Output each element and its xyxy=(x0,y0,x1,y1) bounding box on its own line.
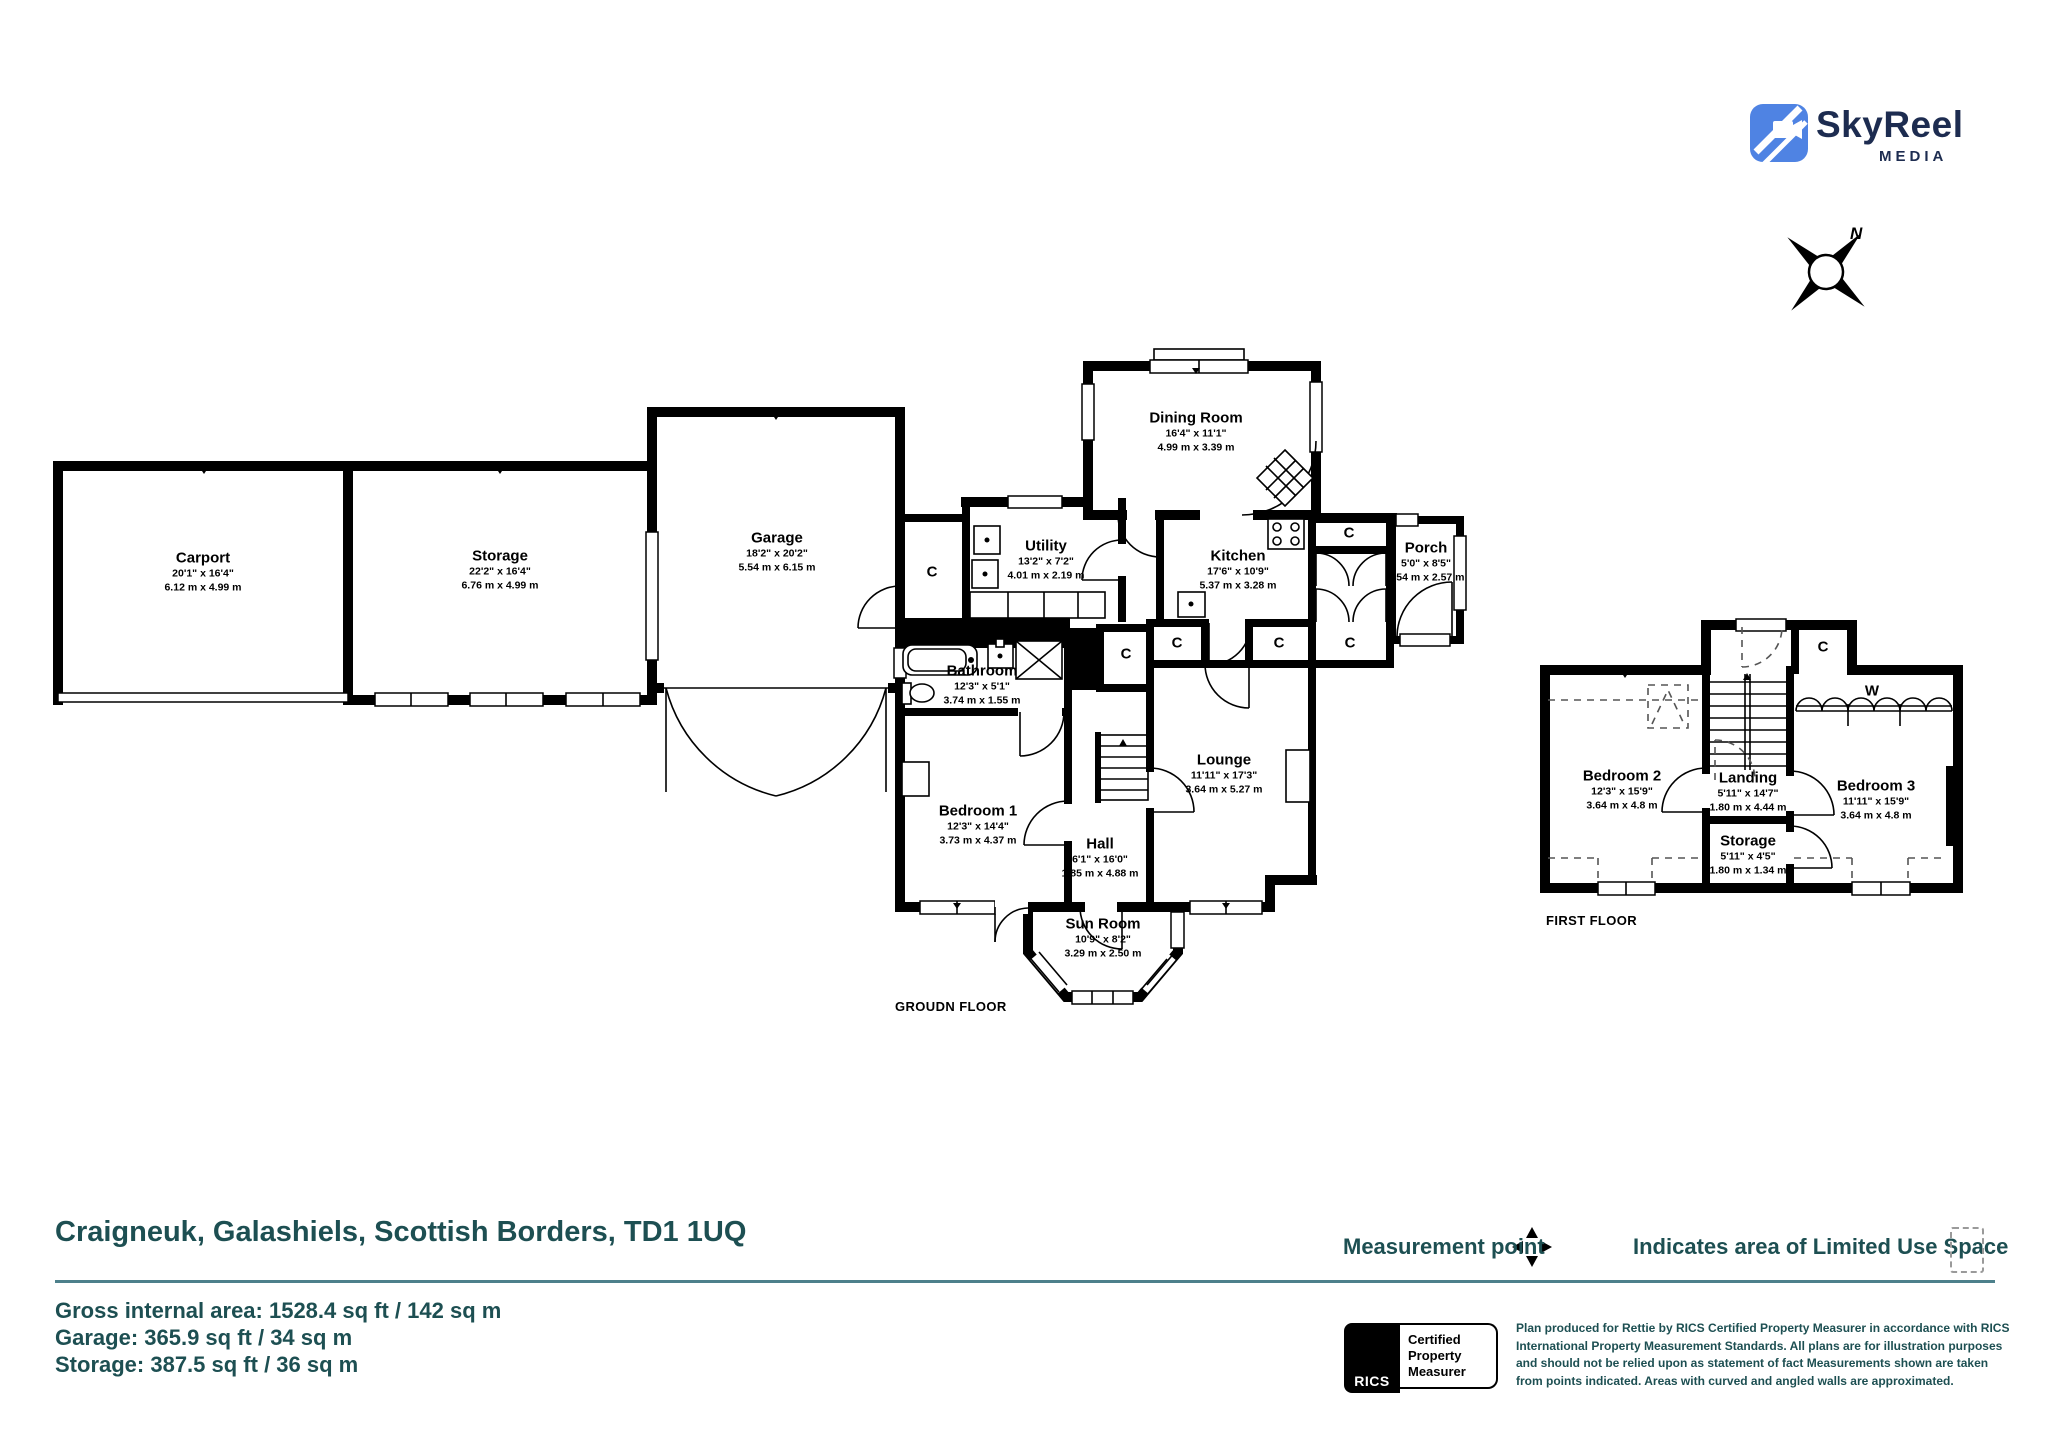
room-label-utility: Utility13'2" x 7'2"4.01 m x 2.19 m xyxy=(1007,538,1084,583)
room-label-sun-room: Sun Room10'9" x 8'2"3.29 m x 2.50 m xyxy=(1064,916,1141,961)
wardrobe-label: W xyxy=(1865,683,1879,700)
area-summary: Gross internal area: 1528.4 sq ft / 142 … xyxy=(55,1297,501,1378)
first-floor-title: FIRST FLOOR xyxy=(1546,913,1637,928)
ground-floor-plan xyxy=(58,349,1466,1004)
rics-logo: RICS xyxy=(1344,1323,1400,1393)
certified-property-measurer-badge: Certified Property Measurer xyxy=(1400,1323,1498,1389)
measurement-point-label: Measurement point xyxy=(1343,1234,1545,1260)
room-label-storage-ff: Storage5'11" x 4'5"1.80 m x 1.34 m xyxy=(1709,833,1786,878)
divider-rule xyxy=(55,1280,1995,1283)
room-label-bedroom-3: Bedroom 311'11" x 15'9"3.64 m x 4.8 m xyxy=(1837,778,1915,823)
gross-internal-area: Gross internal area: 1528.4 sq ft / 142 … xyxy=(55,1297,501,1324)
room-label-bathroom: Bathroom12'3" x 5'1"3.74 m x 1.55 m xyxy=(943,663,1020,708)
cupboard-label: C xyxy=(1274,635,1285,652)
compass-icon xyxy=(1753,199,1900,346)
cupboard-label: C xyxy=(927,564,938,581)
room-label-bedroom-1: Bedroom 112'3" x 14'4"3.73 m x 4.37 m xyxy=(939,803,1017,848)
room-label-lounge: Lounge11'11" x 17'3"3.64 m x 5.27 m xyxy=(1185,752,1262,797)
room-label-garage: Garage18'2" x 20'2"5.54 m x 6.15 m xyxy=(738,530,815,575)
property-address: Craigneuk, Galashiels, Scottish Borders,… xyxy=(55,1216,746,1249)
cupboard-label: C xyxy=(1172,635,1183,652)
skyreel-logo-subtext: MEDIA xyxy=(1879,148,1947,165)
skyreel-logo-icon xyxy=(1750,104,1808,164)
room-label-carport: Carport20'1" x 16'4"6.12 m x 4.99 m xyxy=(164,550,241,595)
compass-north-label: N xyxy=(1850,224,1862,244)
floorplan-page: Carport20'1" x 16'4"6.12 m x 4.99 m Stor… xyxy=(0,0,2048,1447)
cupboard-label: C xyxy=(1345,635,1356,652)
limited-use-swatch xyxy=(1950,1227,1984,1273)
room-label-dining-room: Dining Room16'4" x 11'1"4.99 m x 3.39 m xyxy=(1149,410,1242,455)
storage-area: Storage: 387.5 sq ft / 36 sq m xyxy=(55,1351,501,1378)
room-label-porch: Porch5'0" x 8'5"1.54 m x 2.57 m xyxy=(1387,540,1464,585)
room-label-landing: Landing5'11" x 14'7"1.80 m x 4.44 m xyxy=(1709,770,1786,815)
garage-area: Garage: 365.9 sq ft / 34 sq m xyxy=(55,1324,501,1351)
room-label-kitchen: Kitchen17'6" x 10'9"5.37 m x 3.28 m xyxy=(1199,548,1276,593)
ground-floor-title: GROUDN FLOOR xyxy=(895,999,1007,1014)
cupboard-label: C xyxy=(1121,646,1132,663)
skyreel-logo-text: SkyReel xyxy=(1816,104,1964,146)
disclaimer-text: Plan produced for Rettie by RICS Certifi… xyxy=(1516,1320,2016,1390)
room-label-storage: Storage22'2" x 16'4"6.76 m x 4.99 m xyxy=(461,548,538,593)
cupboard-label: C xyxy=(1818,639,1829,656)
cupboard-label: C xyxy=(1344,525,1355,542)
rics-wordmark: RICS xyxy=(1354,1373,1389,1389)
room-label-bedroom-2: Bedroom 212'3" x 15'9"3.64 m x 4.8 m xyxy=(1583,768,1661,813)
room-label-hall: Hall6'1" x 16'0"1.85 m x 4.88 m xyxy=(1061,836,1138,881)
